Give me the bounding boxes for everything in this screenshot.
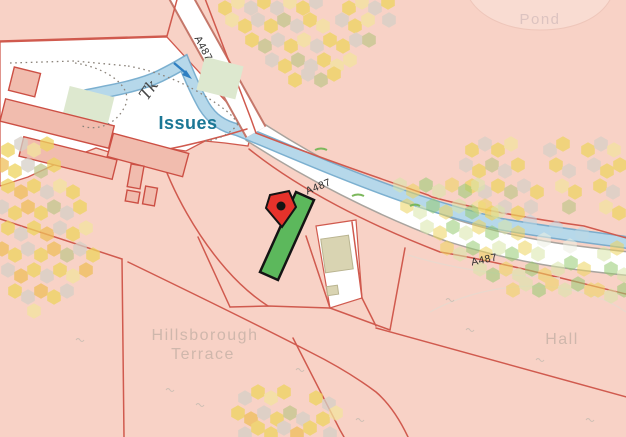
svg-text:Terrace: Terrace — [171, 346, 235, 363]
pond-label: Pond — [519, 11, 560, 28]
svg-text:Hillsborough: Hillsborough — [152, 327, 259, 344]
map-canvas[interactable]: Pond Tk Issues A487 A487 A487 Hillsborou… — [0, 0, 626, 437]
hall-label: Hall — [545, 331, 579, 348]
marker-dot — [277, 202, 286, 211]
issues-label: Issues — [158, 113, 217, 133]
map-viewport[interactable]: Pond Tk Issues A487 A487 A487 Hillsborou… — [0, 0, 626, 437]
